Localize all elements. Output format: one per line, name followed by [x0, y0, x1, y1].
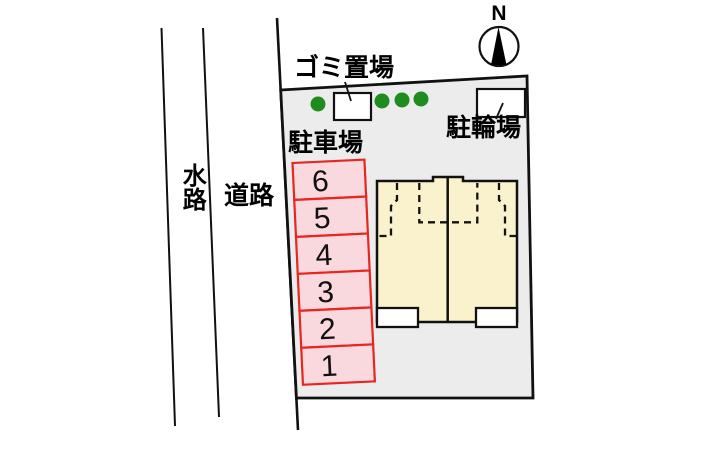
tree-icon — [311, 97, 326, 112]
parking-lot-label: 駐車場 — [288, 130, 363, 156]
garbage-station-rect — [334, 93, 371, 120]
parking-stall-number: 3 — [317, 276, 335, 310]
parking-stall-number: 6 — [311, 165, 329, 199]
tree-icon — [395, 93, 410, 108]
compass-icon — [480, 27, 519, 66]
bicycle-parking-label: 駐輪場 — [446, 115, 521, 141]
parking-stall-number: 5 — [313, 202, 331, 236]
parking-stall-column: 6 5 4 3 2 1 — [293, 160, 375, 385]
parking-stall-number: 4 — [315, 239, 333, 273]
waterway-line-left — [162, 28, 176, 426]
parking-stall-number: 2 — [318, 313, 336, 347]
compass-north-label: N — [487, 3, 511, 25]
waterway-line-right — [203, 28, 219, 417]
road-label: 道路 — [224, 183, 274, 209]
bicycle-parking-rect — [477, 89, 525, 117]
parking-stall-number: 1 — [320, 350, 338, 384]
porch-left — [377, 308, 418, 327]
tree-icon — [375, 94, 390, 109]
tree-icon — [414, 92, 429, 107]
porch-right — [476, 308, 517, 327]
waterway-label: 水路 — [179, 163, 204, 211]
garbage-station-label: ゴミ置場 — [294, 55, 394, 81]
site-plan: 6 5 4 3 2 1 水路 道路 ゴミ置場 駐輪場 駐車場 N — [0, 0, 724, 455]
